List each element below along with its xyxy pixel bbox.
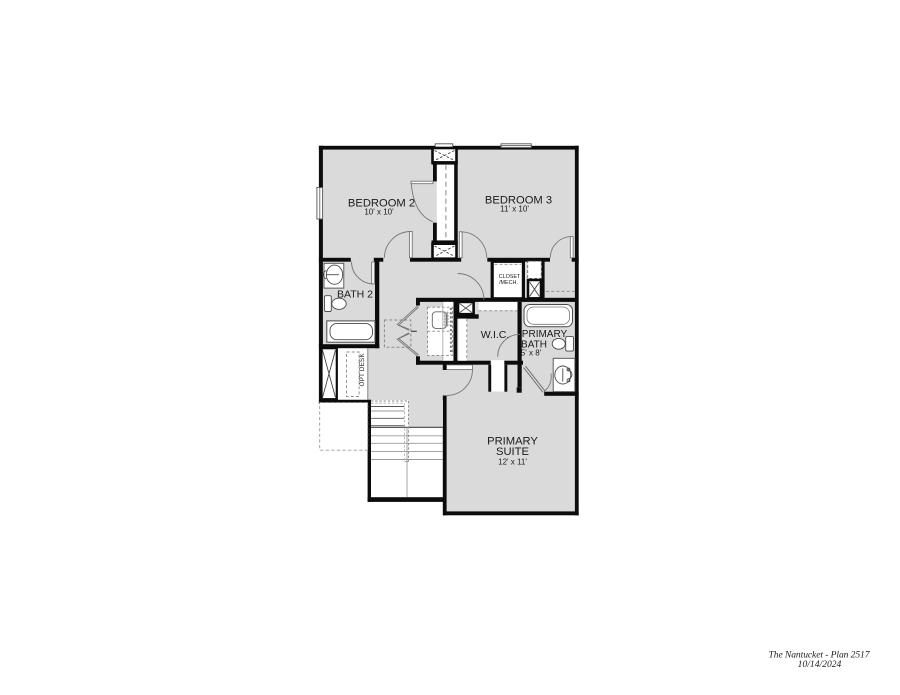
svg-text:PRIMARY: PRIMARY [522,329,568,340]
svg-text:5' x 8': 5' x 8' [521,349,542,358]
svg-text:10' x 10': 10' x 10' [364,208,394,217]
svg-text:OPT DESK: OPT DESK [359,353,366,387]
svg-text:10/14/2024: 10/14/2024 [798,659,842,670]
svg-text:11' x 10': 11' x 10' [500,205,529,214]
svg-text:/MECH.: /MECH. [499,280,518,286]
svg-text:BATH 2: BATH 2 [337,288,373,300]
svg-text:SUITE: SUITE [496,446,529,458]
svg-text:12' x 11': 12' x 11' [498,458,527,467]
svg-text:W.I.C.: W.I.C. [481,329,510,341]
